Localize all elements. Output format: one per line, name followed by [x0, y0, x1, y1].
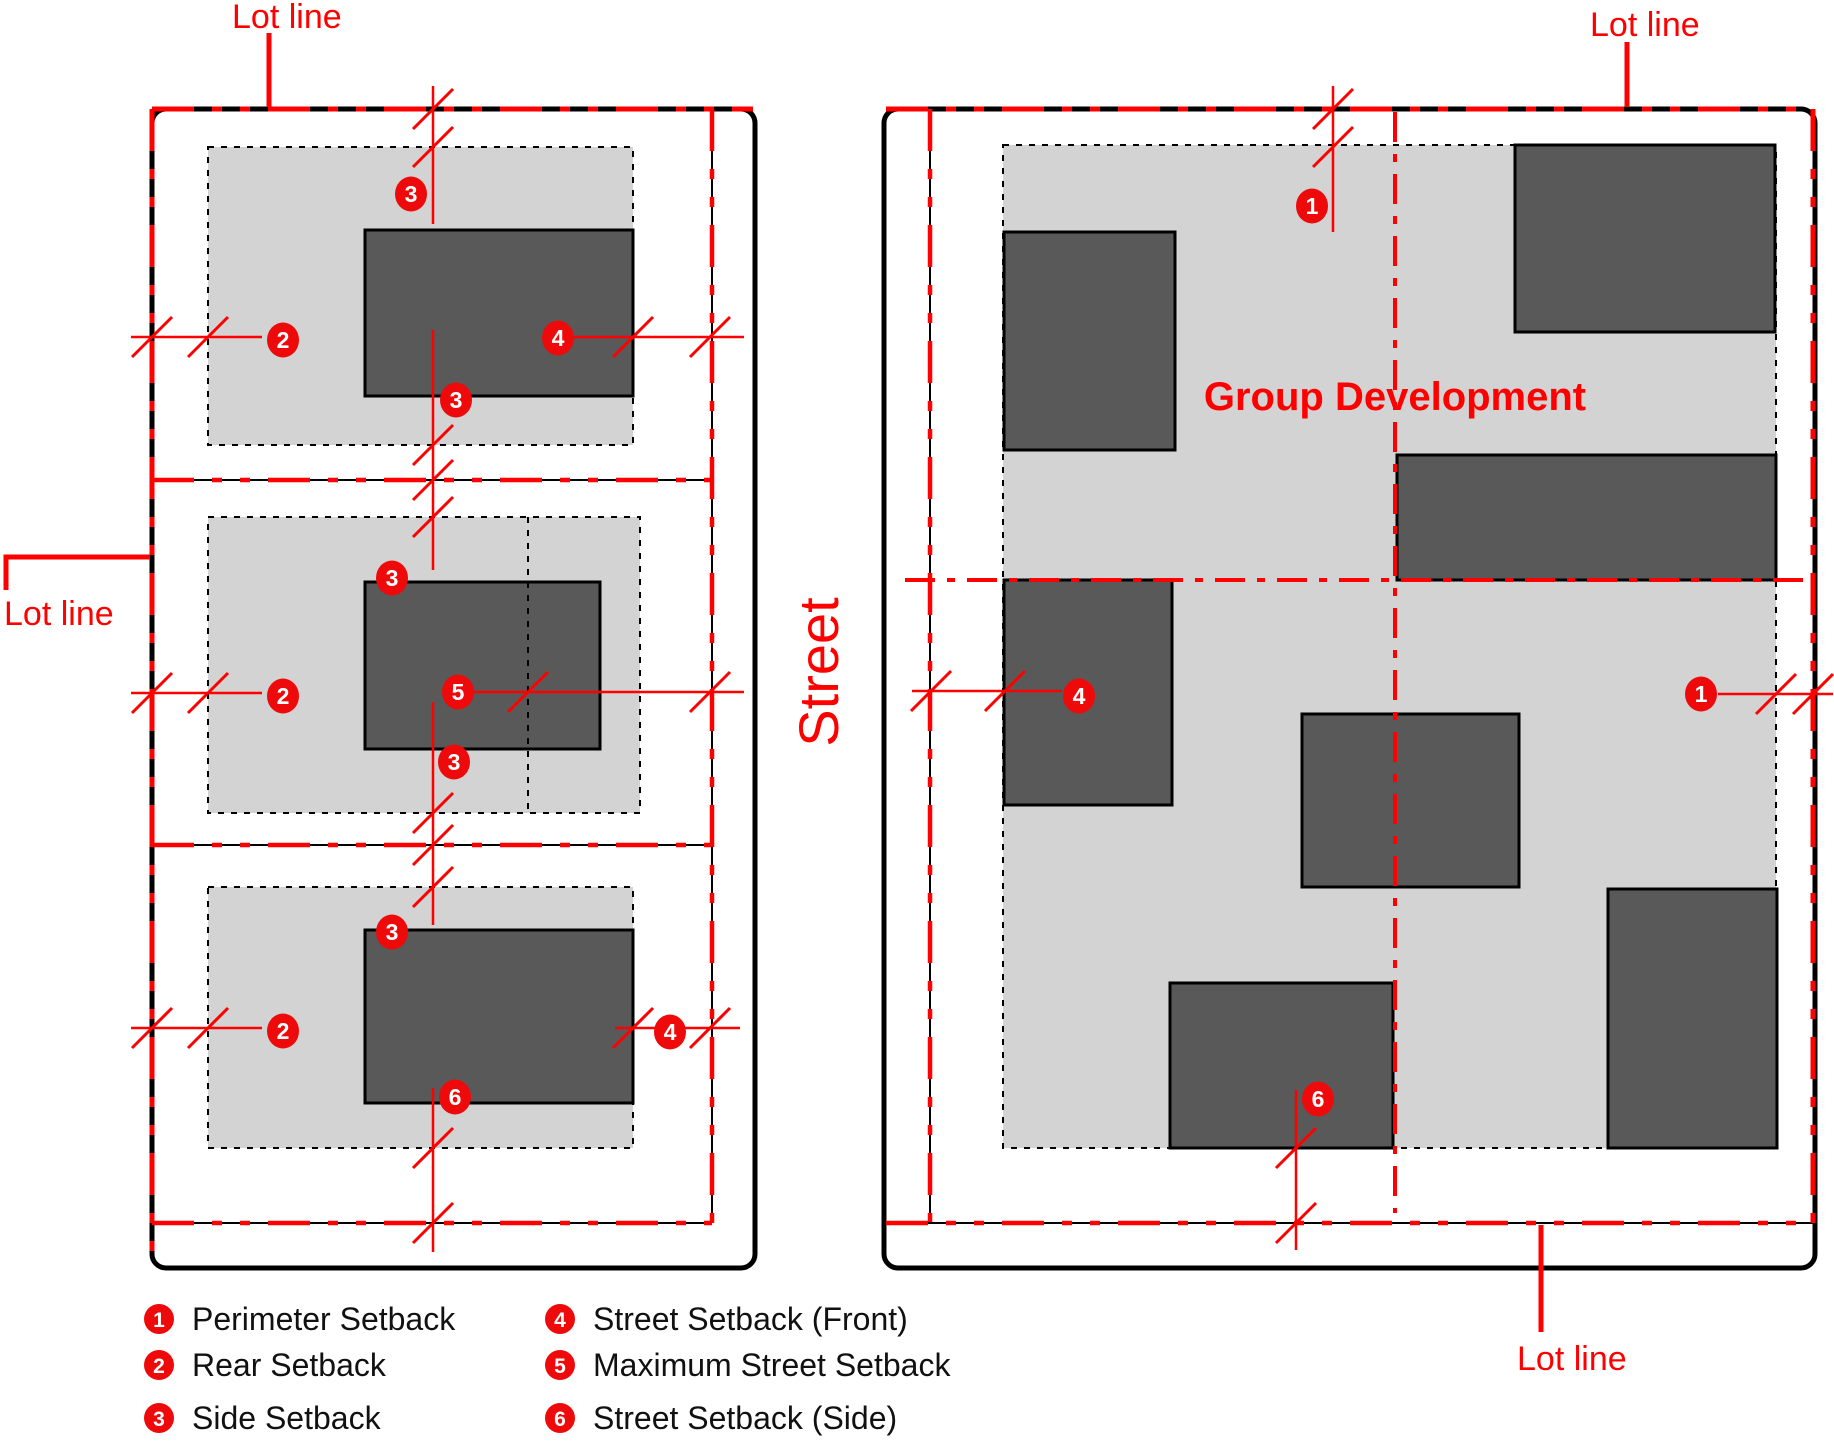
- group-building-center: [1302, 714, 1519, 887]
- marker-street-setback-front: 4: [542, 321, 574, 356]
- svg-text:4: 4: [1073, 683, 1086, 709]
- lot-line-label-top-right: Lot line: [1590, 6, 1700, 44]
- svg-text:1: 1: [1306, 193, 1319, 219]
- lot-line-leader-left: [6, 557, 150, 590]
- legend-item-3: 3 Side Setback: [144, 1400, 382, 1436]
- svg-text:5: 5: [452, 679, 465, 705]
- legend-item-4: 4 Street Setback (Front): [545, 1301, 908, 1337]
- svg-text:Rear Setback: Rear Setback: [192, 1347, 387, 1383]
- svg-text:2: 2: [153, 1355, 165, 1378]
- group-building-top-left: [1004, 232, 1175, 450]
- svg-text:2: 2: [277, 683, 290, 709]
- left-block: 3 3 3 3 3 6 2 2 2 4 5 4: [131, 86, 755, 1268]
- marker-perimeter-setback: 1: [1296, 189, 1328, 224]
- marker-perimeter-setback: 1: [1685, 677, 1717, 712]
- svg-text:3: 3: [386, 565, 399, 591]
- group-building-mid-right: [1397, 455, 1776, 580]
- marker-maximum-street-setback: 5: [442, 675, 474, 710]
- marker-rear-setback: 2: [267, 679, 299, 714]
- svg-text:1: 1: [153, 1309, 165, 1332]
- svg-text:6: 6: [449, 1084, 462, 1110]
- legend-item-6: 6 Street Setback (Side): [545, 1400, 897, 1436]
- diagram-canvas: 3 3 3 3 3 6 2 2 2 4 5 4: [0, 0, 1834, 1444]
- svg-text:Side Setback: Side Setback: [192, 1400, 382, 1436]
- svg-text:3: 3: [448, 749, 461, 775]
- legend: 1 Perimeter Setback 2 Rear Setback 3 Sid…: [144, 1301, 951, 1436]
- lot-line-label-left: Lot line: [4, 595, 114, 633]
- lot-line-label-top-left: Lot line: [232, 0, 342, 36]
- zoning-setback-diagram: 3 3 3 3 3 6 2 2 2 4 5 4: [0, 0, 1834, 1444]
- svg-text:2: 2: [277, 1018, 290, 1044]
- group-building-bottom-right: [1608, 889, 1777, 1148]
- marker-street-setback-side: 6: [439, 1080, 471, 1115]
- group-building-bottom-center: [1170, 983, 1393, 1148]
- svg-text:Street Setback (Front): Street Setback (Front): [593, 1301, 908, 1337]
- marker-side-setback: 3: [376, 561, 408, 596]
- lot-line-label-bottom-right: Lot line: [1517, 1340, 1627, 1378]
- svg-text:4: 4: [664, 1019, 677, 1045]
- marker-street-setback-front: 4: [1063, 679, 1095, 714]
- svg-text:2: 2: [277, 327, 290, 353]
- marker-side-setback: 3: [395, 177, 427, 212]
- group-building-top-right: [1515, 145, 1775, 332]
- marker-side-setback: 3: [438, 745, 470, 780]
- legend-item-5: 5 Maximum Street Setback: [545, 1347, 951, 1383]
- marker-street-setback-side: 6: [1302, 1082, 1334, 1117]
- marker-rear-setback: 2: [267, 1014, 299, 1049]
- svg-text:Maximum Street Setback: Maximum Street Setback: [593, 1347, 951, 1383]
- svg-text:4: 4: [552, 325, 565, 351]
- svg-text:Street Setback (Side): Street Setback (Side): [593, 1400, 897, 1436]
- svg-text:5: 5: [554, 1355, 566, 1378]
- svg-text:4: 4: [554, 1309, 566, 1332]
- legend-item-1: 1 Perimeter Setback: [144, 1301, 456, 1337]
- lot1-building: [365, 230, 633, 396]
- svg-text:3: 3: [386, 919, 399, 945]
- svg-text:6: 6: [554, 1408, 566, 1431]
- lot2-building: [365, 582, 600, 749]
- svg-text:1: 1: [1695, 681, 1708, 707]
- svg-text:6: 6: [1312, 1086, 1325, 1112]
- svg-text:3: 3: [153, 1408, 165, 1431]
- svg-text:3: 3: [450, 387, 463, 413]
- svg-text:3: 3: [405, 181, 418, 207]
- marker-side-setback: 3: [440, 383, 472, 418]
- lot3-building: [365, 930, 633, 1103]
- right-block-group-development: 1 4 1 6 Group Development: [884, 86, 1833, 1268]
- svg-text:Perimeter Setback: Perimeter Setback: [192, 1301, 456, 1337]
- marker-street-setback-front: 4: [654, 1015, 686, 1050]
- legend-item-2: 2 Rear Setback: [144, 1347, 387, 1383]
- group-development-label: Group Development: [1204, 375, 1586, 419]
- street-label: Street: [787, 597, 850, 747]
- marker-rear-setback: 2: [267, 323, 299, 358]
- marker-side-setback: 3: [376, 915, 408, 950]
